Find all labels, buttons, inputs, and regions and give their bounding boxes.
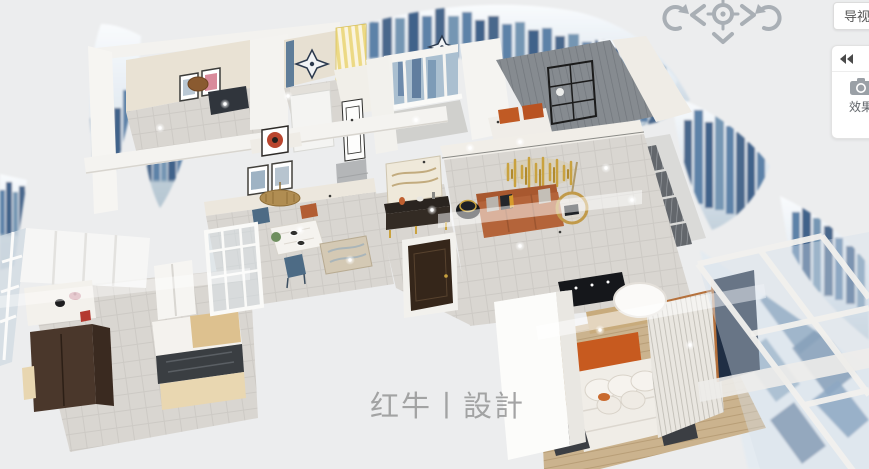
- designer-watermark: 红牛丨設計: [370, 383, 525, 425]
- tatami-cushion[interactable]: [498, 107, 520, 124]
- bedroom-white-wall: [494, 290, 586, 460]
- tatami-cushion[interactable]: [522, 103, 544, 120]
- effect-tool-button[interactable]: 效果: [832, 72, 869, 115]
- chevron-left-icon[interactable]: [692, 6, 704, 24]
- panel-collapse-button[interactable]: [832, 46, 869, 72]
- chevron-down-icon[interactable]: [714, 34, 732, 42]
- camera-orbit-control[interactable]: [660, 0, 784, 50]
- orbit-target-icon[interactable]: [708, 0, 738, 29]
- effect-tool-label: 效果: [849, 98, 869, 115]
- kitchen-island[interactable]: [152, 310, 246, 410]
- table-plant: [271, 232, 281, 242]
- door-handle: [444, 274, 448, 278]
- double-chevron-left-icon: [840, 54, 853, 64]
- camera-icon: [850, 78, 869, 95]
- dining-chair-blue[interactable]: [284, 254, 306, 278]
- effects-tool-panel: 效果: [831, 45, 869, 139]
- design-app-viewport: 红牛丨設計 导视图 效果: [0, 0, 869, 469]
- chevron-right-icon[interactable]: [742, 6, 754, 24]
- study-chair[interactable]: [188, 77, 208, 91]
- nav-view-button[interactable]: 导视图: [833, 2, 869, 30]
- glass-partition[interactable]: [206, 224, 262, 314]
